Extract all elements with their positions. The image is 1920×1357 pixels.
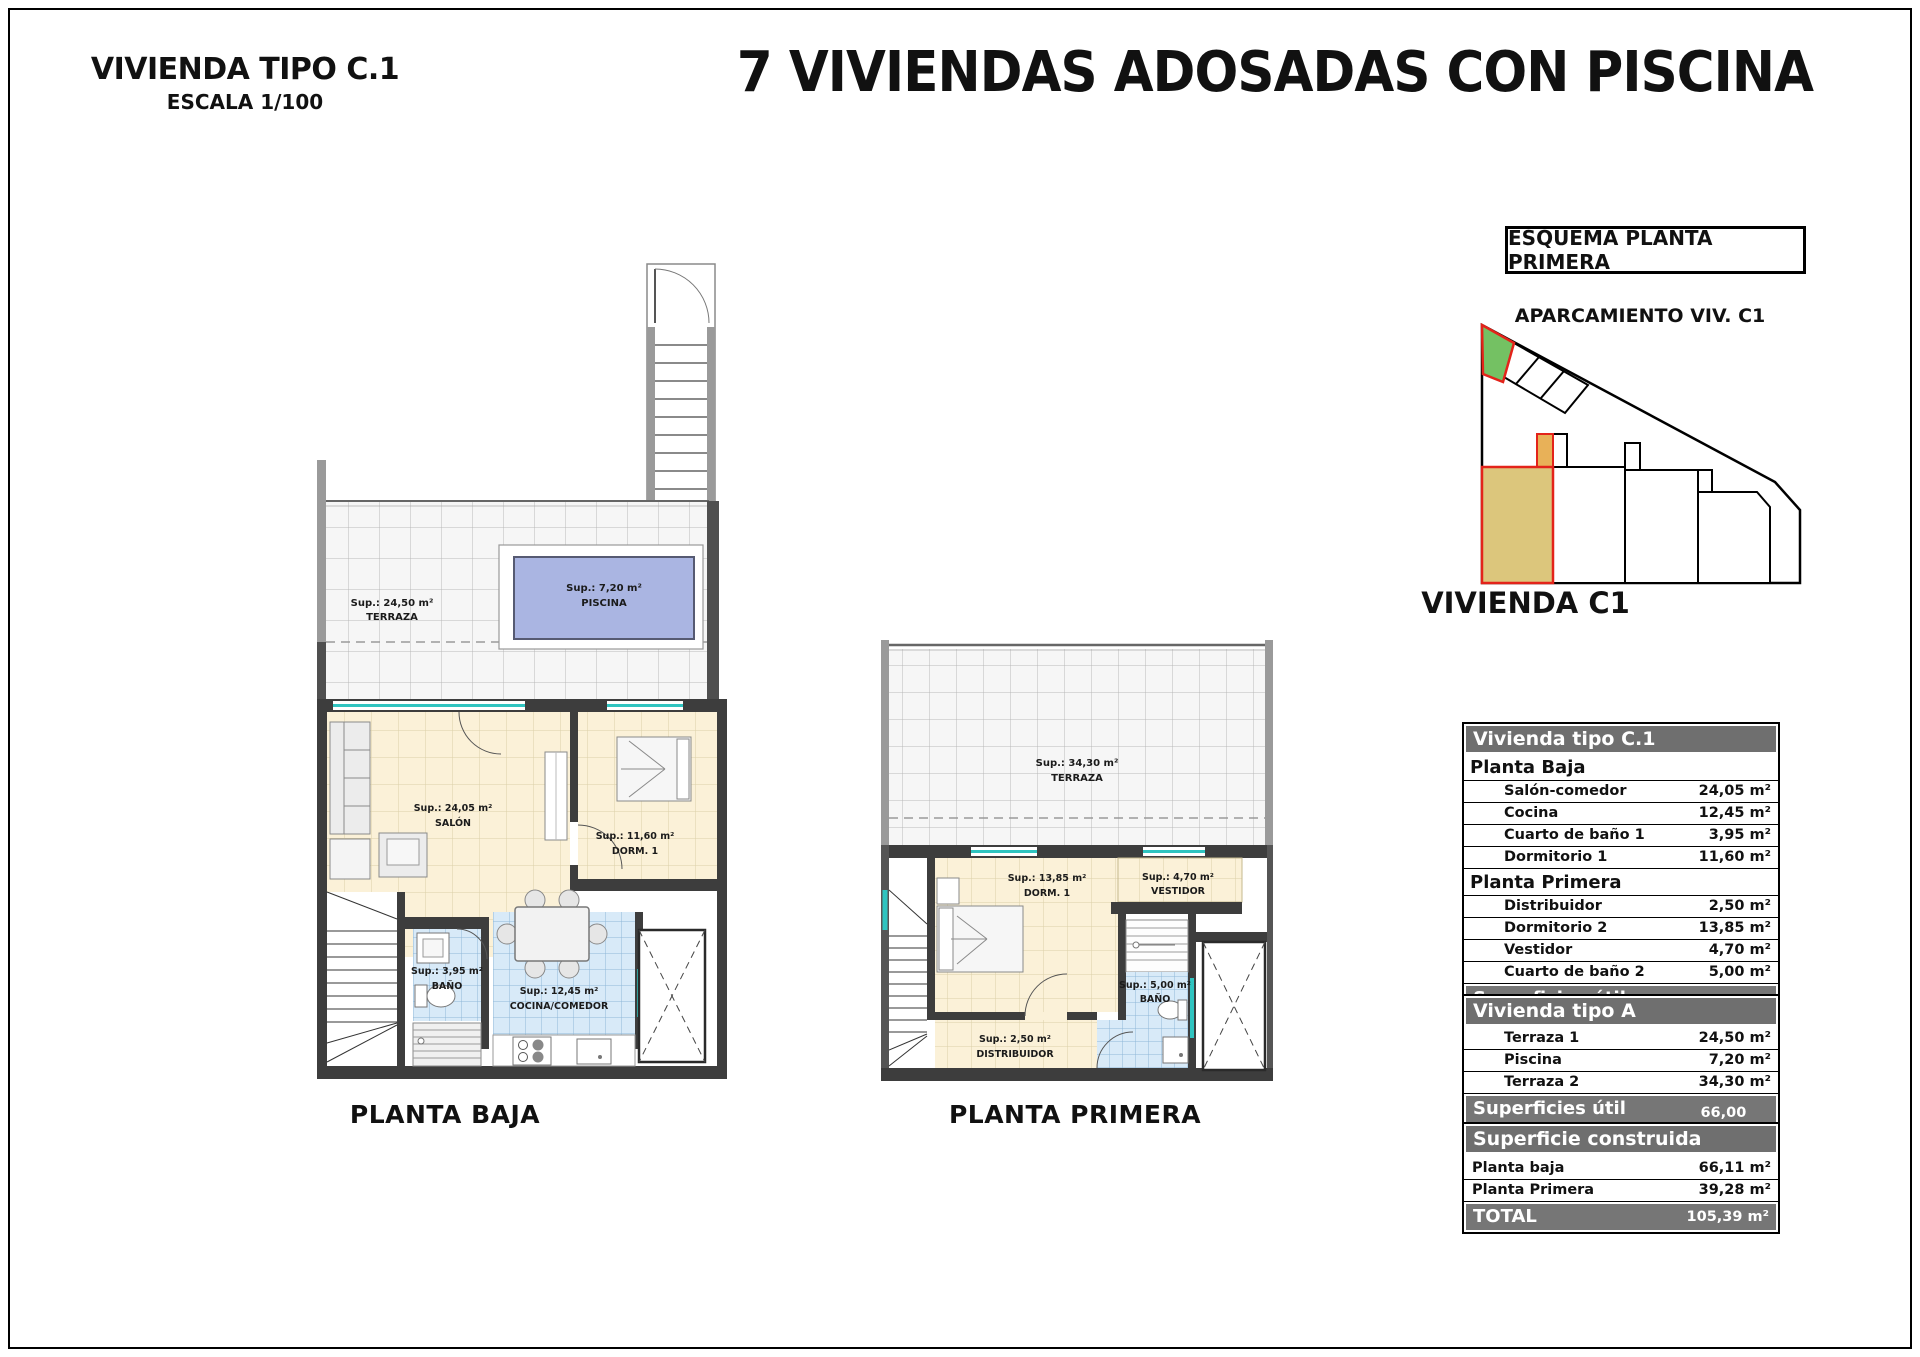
nightstand <box>937 878 959 904</box>
vivienda-c1-label: VIVIENDA C1 <box>1408 586 1643 620</box>
row-label: Vestidor <box>1504 941 1572 960</box>
sheet-border: VIVIENDA TIPO C.1 ESCALA 1/100 7 VIVIEND… <box>8 8 1912 1349</box>
row-value: 24,50 m² <box>1699 1029 1771 1048</box>
row-label: Cuarto de baño 1 <box>1504 826 1645 845</box>
pool <box>499 545 703 649</box>
piscina-sup-label: Sup.: 7,20 m² <box>566 583 642 594</box>
bano2-name-label: BAÑO <box>1140 994 1171 1005</box>
table-title: Vivienda tipo A <box>1466 998 1776 1024</box>
table-row: Cocina 12,45 m² <box>1464 803 1778 825</box>
drawing-type-title: VIVIENDA TIPO C.1 <box>90 52 400 87</box>
dorm1-name-label: DORM. 1 <box>612 846 658 857</box>
table-row: Cuarto de baño 2 5,00 m² <box>1464 962 1778 984</box>
page-title: 7 VIVIENDAS ADOSADAS CON PISCINA <box>691 40 1859 105</box>
table-title: Vivienda tipo C.1 <box>1466 726 1776 752</box>
row-value: 11,60 m² <box>1699 848 1771 867</box>
row-value: 4,70 m² <box>1709 941 1771 960</box>
row-label: Terraza 1 <box>1504 1029 1579 1048</box>
table-row: Vestidor 4,70 m² <box>1464 940 1778 962</box>
table-row: Salón-comedor 24,05 m² <box>1464 781 1778 803</box>
table-row: Cuarto de baño 1 3,95 m² <box>1464 825 1778 847</box>
table-row: Terraza 1 24,50 m² <box>1464 1028 1778 1050</box>
dorm1-sup-label: Sup.: 11,60 m² <box>596 831 675 842</box>
row-label: Cuarto de baño 2 <box>1504 963 1645 982</box>
interior-staircase <box>327 892 405 1066</box>
sofa <box>330 722 370 879</box>
cocina-sup-label: Sup.: 12,45 m² <box>520 986 599 997</box>
kitchen-sink <box>577 1039 611 1064</box>
dorm2-left-wall <box>927 858 935 1020</box>
distribuidor-sup-label: Sup.: 2,50 m² <box>979 1034 1051 1045</box>
row-value: 24,05 m² <box>1699 782 1771 801</box>
row-label: Distribuidor <box>1504 897 1602 916</box>
row-label: Terraza 2 <box>1504 1073 1579 1092</box>
row-value: 34,30 m² <box>1699 1073 1771 1092</box>
dorm2-name-label: DORM. 1 <box>1024 888 1070 899</box>
row-value: 13,85 m² <box>1699 919 1771 938</box>
table-row: Dormitorio 1 11,60 m² <box>1464 847 1778 869</box>
interior-staircase-first <box>889 888 927 1068</box>
vestidor-bottom-wall <box>1111 902 1242 914</box>
caption-planta-primera: PLANTA PRIMERA <box>900 1100 1250 1129</box>
exterior-staircase <box>647 264 715 512</box>
row-value: 3,95 m² <box>1709 826 1771 845</box>
esquema-title: ESQUEMA PLANTA PRIMERA <box>1508 226 1803 274</box>
armchair <box>379 833 427 877</box>
floorplan-planta-primera: Sup.: 34,30 m² TERRAZA <box>875 638 1280 1095</box>
vestidor-sup-label: Sup.: 4,70 m² <box>1142 872 1214 883</box>
footer-label: TOTAL <box>1473 1205 1537 1229</box>
row-label: Dormitorio 1 <box>1504 848 1607 867</box>
table-row: Planta baja 66,11 m² <box>1464 1158 1778 1180</box>
table-superficies-interior: Vivienda tipo C.1 Planta Baja Salón-come… <box>1462 722 1780 1040</box>
shower <box>1163 1037 1188 1063</box>
row-label: Salón-comedor <box>1504 782 1627 801</box>
table-footer: TOTAL 105,39 m² <box>1466 1204 1776 1230</box>
row-value: 2,50 m² <box>1709 897 1771 916</box>
row-label: Planta Primera <box>1472 1181 1594 1200</box>
bano2-sup-label: Sup.: 5,00 m² <box>1119 980 1191 991</box>
kitchen <box>493 890 643 1066</box>
terraza-sup-label: Sup.: 24,50 m² <box>351 598 434 609</box>
footer-value: 105,39 m² <box>1687 1209 1769 1225</box>
salon-name-label: SALÓN <box>435 817 471 829</box>
toilet-tank <box>1178 1000 1187 1020</box>
piscina-name-label: PISCINA <box>581 598 627 609</box>
dorm2-sup-label: Sup.: 13,85 m² <box>1008 873 1087 884</box>
drawing-scale: ESCALA 1/100 <box>90 90 400 114</box>
distribuidor-name-label: DISTRIBUIDOR <box>976 1049 1054 1060</box>
side-table <box>330 839 370 879</box>
row-label: Dormitorio 2 <box>1504 919 1607 938</box>
garage-box <box>639 930 705 1062</box>
table-row: Terraza 2 34,30 m² <box>1464 1072 1778 1094</box>
terraza1-sup-label: Sup.: 34,30 m² <box>1036 758 1119 769</box>
table-row: Distribuidor 2,50 m² <box>1464 896 1778 918</box>
floorplan-planta-baja: Sup.: 24,50 m² TERRAZA Sup.: 7,20 m² PIS… <box>317 217 727 1092</box>
terraza-name-label: TERRAZA <box>366 612 418 623</box>
stove <box>513 1037 551 1065</box>
row-value: 66,11 m² <box>1699 1159 1771 1178</box>
row-label: Planta baja <box>1472 1159 1564 1178</box>
bed <box>617 737 691 801</box>
row-value: 39,28 m² <box>1699 1181 1771 1200</box>
row-label: Piscina <box>1504 1051 1562 1070</box>
section-heading: Planta Primera <box>1464 869 1778 896</box>
vestidor-name-label: VESTIDOR <box>1151 886 1206 897</box>
bano-name-label: BAÑO <box>432 981 463 992</box>
salon-sup-label: Sup.: 24,05 m² <box>414 803 493 814</box>
table-superficie-construida: Superficie construida Planta baja 66,11 … <box>1462 1122 1780 1234</box>
row-label: Cocina <box>1504 804 1558 823</box>
garage-box-first <box>1196 932 1267 1070</box>
esquema-site-plan <box>1465 310 1815 620</box>
terraza1-name-label: TERRAZA <box>1051 773 1103 784</box>
toilet-tank <box>415 985 427 1007</box>
table-row: Dormitorio 2 13,85 m² <box>1464 918 1778 940</box>
row-value: 5,00 m² <box>1709 963 1771 982</box>
section-heading: Planta Baja <box>1464 754 1778 781</box>
table-row: Planta Primera 39,28 m² <box>1464 1180 1778 1202</box>
caption-planta-baja: PLANTA BAJA <box>280 1100 610 1129</box>
row-value: 12,45 m² <box>1699 804 1771 823</box>
terrace-first <box>881 640 1273 845</box>
row-value: 7,20 m² <box>1709 1051 1771 1070</box>
cocina-name-label: COCINA/COMEDOR <box>510 1001 609 1012</box>
table-title: Superficie construida <box>1466 1126 1776 1152</box>
esquema-title-box: ESQUEMA PLANTA PRIMERA <box>1505 226 1806 274</box>
bano-sup-label: Sup.: 3,95 m² <box>411 966 483 977</box>
table-row: Piscina 7,20 m² <box>1464 1050 1778 1072</box>
